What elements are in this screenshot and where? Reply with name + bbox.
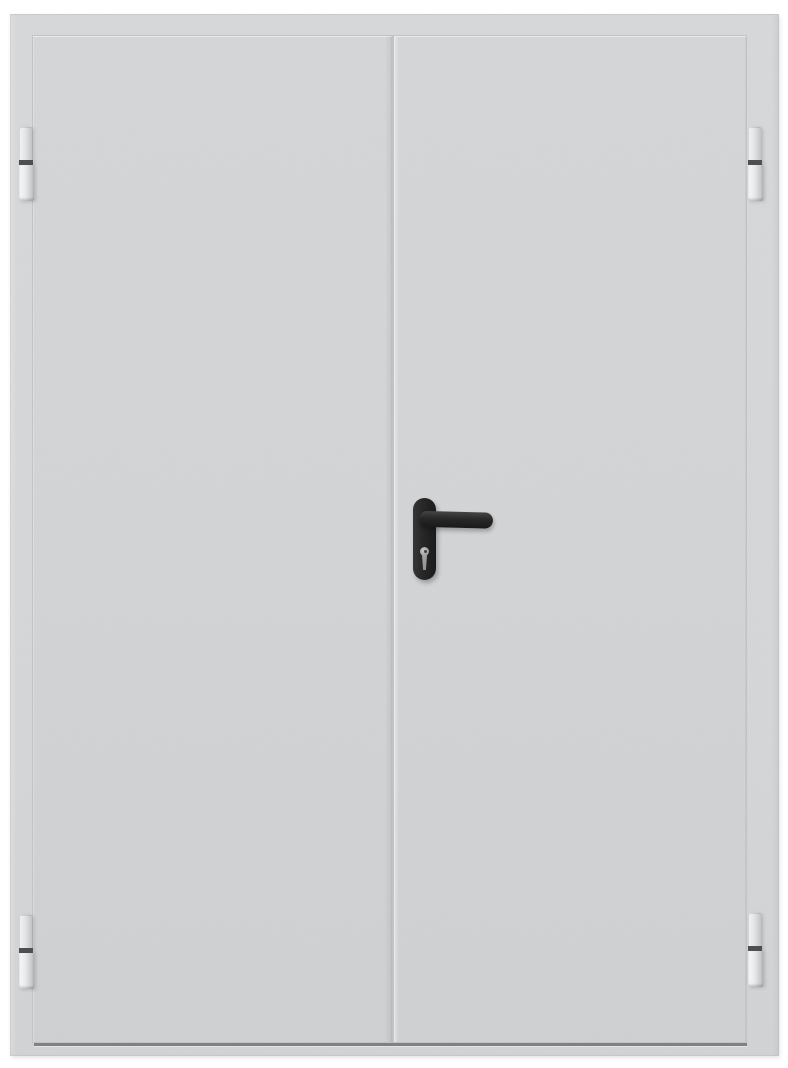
keyhole-pin bbox=[424, 550, 427, 553]
hinge-knuckle-lower bbox=[19, 165, 34, 201]
door-leaf-right bbox=[394, 36, 746, 1042]
hinge-knuckle-lower bbox=[19, 953, 34, 989]
hinge-knuckle-upper bbox=[749, 913, 761, 946]
hinge-bottom-right bbox=[748, 913, 763, 987]
hinge-knuckle-upper bbox=[20, 127, 32, 160]
hinge-knuckle-lower bbox=[748, 165, 763, 201]
hinge-knuckle-upper bbox=[20, 915, 32, 948]
hinge-knuckle-lower bbox=[748, 951, 763, 987]
door-frame bbox=[10, 14, 779, 1056]
hinge-knuckle-upper bbox=[749, 127, 761, 160]
hinge-top-right bbox=[748, 127, 763, 201]
hinge-top-left bbox=[19, 127, 34, 201]
door-bottom-gap bbox=[34, 1043, 747, 1047]
door-leaf-left bbox=[33, 36, 392, 1042]
product-photo-canvas bbox=[0, 0, 788, 1068]
keyhole-slot bbox=[422, 555, 427, 570]
euro-cylinder-keyhole bbox=[420, 547, 429, 571]
lever-handle bbox=[419, 511, 493, 529]
door-leaf-area bbox=[32, 35, 747, 1043]
hinge-bottom-left bbox=[19, 915, 34, 989]
